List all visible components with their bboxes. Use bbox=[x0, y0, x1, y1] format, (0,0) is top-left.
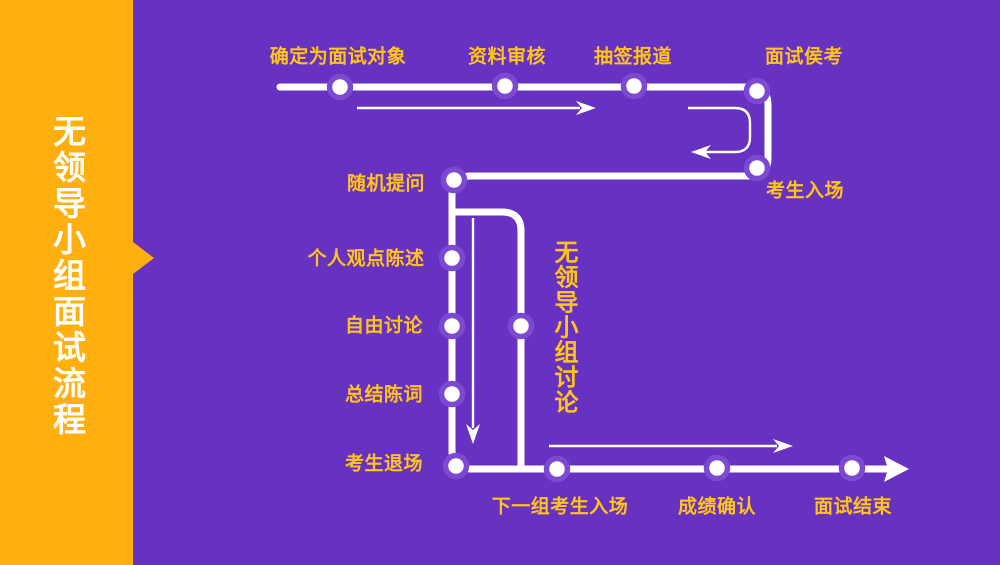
step-label-next-group-enter: 下一组考生入场 bbox=[492, 498, 629, 517]
node-group-discussion bbox=[511, 316, 532, 337]
node-score-confirm bbox=[707, 458, 728, 479]
node-candidate-exit bbox=[446, 456, 467, 477]
node-free-discussion bbox=[442, 316, 463, 337]
step-label-interview-waiting: 面试侯考 bbox=[765, 48, 843, 67]
step-label-confirm-candidate: 确定为面试对象 bbox=[270, 48, 407, 67]
step-label-free-discussion: 自由讨论 bbox=[345, 317, 423, 336]
flow-diagram bbox=[0, 0, 1000, 565]
step-label-material-review: 资料审核 bbox=[468, 48, 546, 67]
node-material-review bbox=[495, 76, 516, 97]
node-interview-waiting bbox=[747, 81, 768, 102]
node-closing-statement bbox=[442, 384, 463, 405]
node-next-group-enter bbox=[547, 459, 568, 480]
group-discussion-label: 无领导小组讨论 bbox=[551, 240, 575, 415]
node-random-questions bbox=[444, 170, 465, 191]
node-personal-statement bbox=[442, 248, 463, 269]
step-label-random-questions: 随机提问 bbox=[347, 175, 425, 194]
step-label-candidate-enter: 考生入场 bbox=[766, 182, 844, 201]
step-label-draw-lots-register: 抽签报道 bbox=[594, 48, 672, 67]
page-title: 无领导小组面试流程 bbox=[51, 114, 84, 438]
step-label-score-confirm: 成绩确认 bbox=[678, 498, 756, 517]
step-label-candidate-exit: 考生退场 bbox=[345, 455, 423, 474]
slide: 无领导小组面试流程 确定为面试对象 资料审核 抽签报道 面试侯考 考生入场 随机… bbox=[0, 0, 1000, 565]
node-confirm-candidate bbox=[330, 77, 351, 98]
node-interview-end bbox=[842, 458, 863, 479]
node-candidate-enter bbox=[747, 158, 768, 179]
node-draw-lots-register bbox=[624, 76, 645, 97]
step-label-closing-statement: 总结陈词 bbox=[345, 386, 423, 405]
step-label-personal-statement: 个人观点陈述 bbox=[307, 250, 424, 269]
step-label-interview-end: 面试结束 bbox=[814, 498, 892, 517]
